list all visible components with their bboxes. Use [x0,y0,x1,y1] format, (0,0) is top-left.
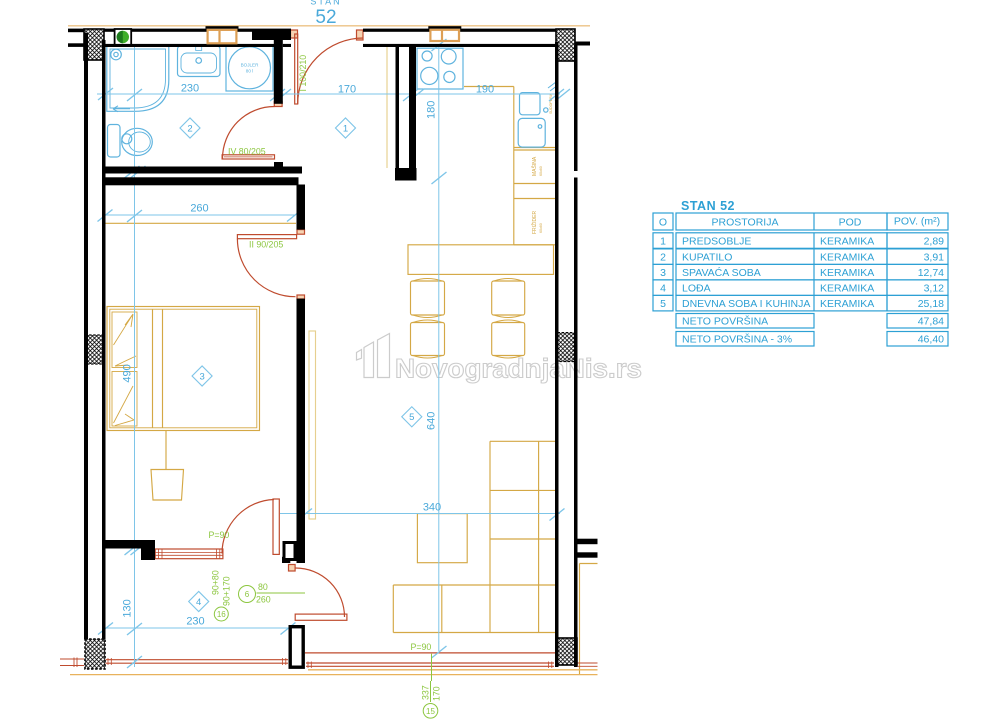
svg-text:260: 260 [256,595,271,605]
svg-text:337: 337 [421,685,431,700]
svg-text:6: 6 [245,590,250,599]
svg-text:52: 52 [315,7,336,28]
svg-text:260: 260 [190,203,208,215]
svg-text:IV 80/205: IV 80/205 [228,147,266,157]
svg-text:STAN: STAN [310,0,341,7]
svg-text:KERAMIKA: KERAMIKA [820,298,874,310]
svg-text:2,89: 2,89 [924,236,945,248]
svg-text:MAŠINA: MAŠINA [531,156,538,176]
svg-text:KERAMIKA: KERAMIKA [820,236,874,248]
svg-text:NETO POVRŠINA - 3%: NETO POVRŠINA - 3% [682,333,792,346]
svg-text:BOJLER: BOJLER [241,63,260,68]
svg-text:46,40: 46,40 [918,334,944,346]
svg-text:KERAMIKA: KERAMIKA [820,283,874,295]
svg-text:P=90: P=90 [411,642,432,652]
svg-text:KUPATILO: KUPATILO [682,252,732,264]
svg-text:3,91: 3,91 [924,252,945,264]
svg-text:4: 4 [196,597,201,608]
svg-text:5: 5 [409,412,414,423]
svg-text:80 l: 80 l [246,69,253,74]
svg-text:I 100/210: I 100/210 [298,55,308,92]
svg-text:230: 230 [186,616,204,628]
svg-text:230: 230 [181,83,199,95]
svg-text:640: 640 [426,412,438,430]
svg-text:4: 4 [660,283,666,295]
svg-text:170: 170 [338,84,356,96]
svg-text:80: 80 [258,582,268,592]
svg-text:490: 490 [122,364,134,382]
svg-text:KERAMIKA: KERAMIKA [820,252,874,264]
svg-text:3,12: 3,12 [924,283,945,295]
svg-text:16: 16 [217,610,226,619]
svg-text:60x60: 60x60 [539,166,543,176]
svg-text:SPAVAĆA SOBA: SPAVAĆA SOBA [682,266,761,279]
svg-text:90+80: 90+80 [211,570,221,595]
svg-text:FRIŽIDER: FRIŽIDER [530,211,538,234]
svg-text:3: 3 [660,267,666,279]
svg-text:1: 1 [343,123,348,134]
svg-text:II 90/205: II 90/205 [249,240,283,250]
svg-text:O: O [659,217,667,229]
svg-text:DNEVNA SOBA I KUHINJA: DNEVNA SOBA I KUHINJA [682,298,810,310]
svg-text:SUDOPERA: SUDOPERA [549,93,553,114]
svg-text:PREDSOBLJE: PREDSOBLJE [682,236,751,248]
svg-text:47,84: 47,84 [918,316,944,328]
svg-text:340: 340 [423,502,441,514]
svg-text:P=90: P=90 [209,530,230,540]
svg-text:2: 2 [660,252,666,264]
svg-text:15: 15 [426,707,435,716]
svg-text:2: 2 [187,123,192,134]
svg-text:12,74: 12,74 [918,267,944,279]
svg-text:POD: POD [839,217,862,229]
svg-text:STAN 52: STAN 52 [681,199,735,213]
svg-text:130: 130 [122,599,134,617]
svg-text:3: 3 [199,371,204,382]
svg-text:PROSTORIJA: PROSTORIJA [712,217,779,229]
svg-text:5: 5 [660,298,666,310]
svg-text:25,18: 25,18 [918,298,944,310]
svg-text:180: 180 [426,101,438,119]
svg-text:90+170: 90+170 [222,576,232,606]
svg-text:1: 1 [660,236,666,248]
svg-text:60x60: 60x60 [539,223,543,233]
svg-text:170: 170 [432,686,442,701]
svg-text:NETO POVRŠINA: NETO POVRŠINA [682,315,768,328]
svg-text:POV. (m²): POV. (m²) [894,216,940,228]
svg-text:LOĐA: LOĐA [682,283,711,295]
svg-text:KERAMIKA: KERAMIKA [820,267,874,279]
svg-text:190: 190 [476,84,494,96]
